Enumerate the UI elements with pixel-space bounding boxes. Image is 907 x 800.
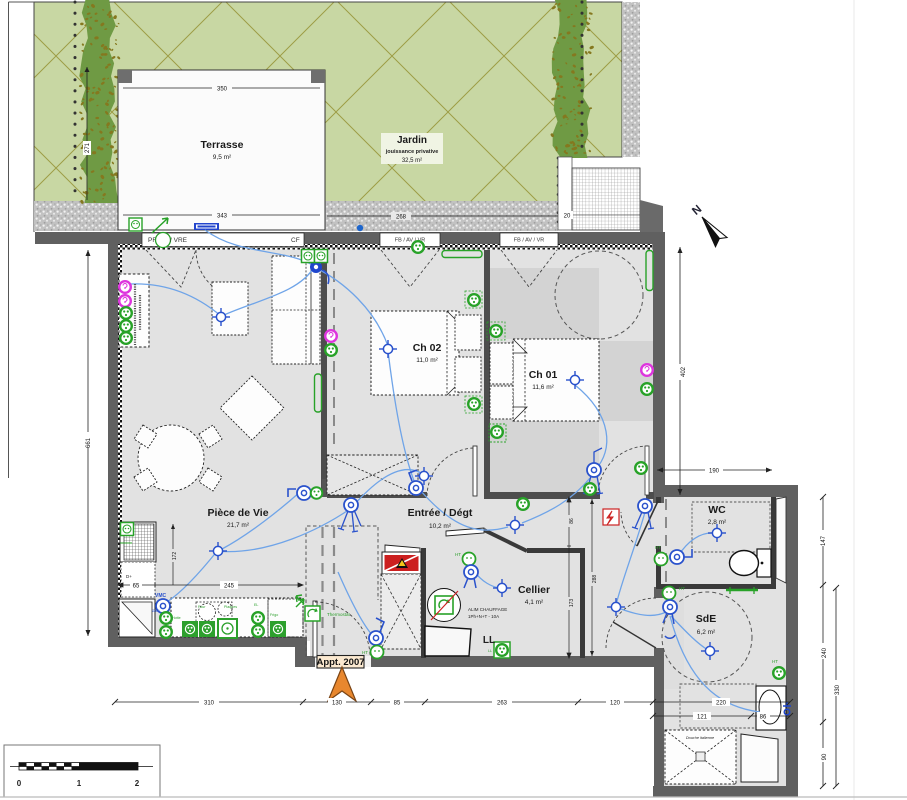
svg-text:HT: HT <box>655 545 661 550</box>
svg-text:86: 86 <box>760 715 767 721</box>
svg-text:220: 220 <box>716 701 727 707</box>
svg-text:Plaques: Plaques <box>224 605 237 609</box>
svg-text:11,6 m²: 11,6 m² <box>532 384 554 391</box>
svg-text:HT: HT <box>362 650 368 655</box>
svg-text:6,2 m²: 6,2 m² <box>697 629 716 636</box>
svg-text:9,5 m²: 9,5 m² <box>213 154 232 161</box>
svg-text:Thermostat: Thermostat <box>327 612 351 617</box>
svg-text:130: 130 <box>332 701 343 707</box>
svg-text:402: 402 <box>681 366 687 377</box>
svg-text:FB / AV / VR: FB / AV / VR <box>514 238 544 244</box>
svg-text:268: 268 <box>396 215 407 221</box>
svg-text:Pièce de Vie: Pièce de Vie <box>207 507 268 519</box>
svg-text:1Ph+N+T - 10A: 1Ph+N+T - 10A <box>468 614 499 619</box>
svg-text:350: 350 <box>217 87 228 93</box>
svg-text:240: 240 <box>822 647 828 658</box>
svg-text:21,7 m²: 21,7 m² <box>227 522 250 529</box>
svg-text:Frigo: Frigo <box>270 613 278 617</box>
svg-text:Appt. 2007: Appt. 2007 <box>316 657 364 668</box>
svg-text:Hotte: Hotte <box>172 616 181 620</box>
svg-text:85: 85 <box>394 701 401 707</box>
svg-text:173: 173 <box>569 599 575 608</box>
svg-text:288: 288 <box>592 575 598 584</box>
svg-text:11,0 m²: 11,0 m² <box>416 357 438 364</box>
svg-text:Four: Four <box>198 605 206 609</box>
svg-text:Douche italienne: Douche italienne <box>686 736 714 740</box>
svg-text:EL: EL <box>254 603 258 607</box>
svg-text:0: 0 <box>17 779 22 788</box>
svg-text:271: 271 <box>85 142 91 153</box>
svg-text:jouissance privative: jouissance privative <box>385 149 439 155</box>
svg-text:LL: LL <box>488 649 492 653</box>
svg-text:120: 120 <box>610 701 621 707</box>
svg-text:VMC: VMC <box>155 593 167 599</box>
svg-text:Entrée / Dégt: Entrée / Dégt <box>408 507 473 519</box>
svg-text:121: 121 <box>697 715 708 721</box>
svg-text:2: 2 <box>135 779 140 788</box>
svg-text:Jardin: Jardin <box>397 135 427 146</box>
svg-text:Ch 01: Ch 01 <box>529 369 558 381</box>
svg-text:32,5 m²: 32,5 m² <box>402 158 422 164</box>
svg-text:245: 245 <box>224 584 235 590</box>
svg-text:Ch 02: Ch 02 <box>413 342 442 354</box>
svg-text:D+: D+ <box>126 574 132 579</box>
svg-text:90: 90 <box>822 753 828 760</box>
svg-text:190: 190 <box>709 469 720 475</box>
svg-text:/ VRE: / VRE <box>170 237 188 244</box>
svg-text:Cellier: Cellier <box>518 584 550 596</box>
svg-text:65: 65 <box>133 584 140 590</box>
svg-text:343: 343 <box>217 214 228 220</box>
svg-text:HT: HT <box>772 659 778 664</box>
svg-text:20: 20 <box>564 214 571 220</box>
svg-text:330: 330 <box>835 684 841 695</box>
svg-text:86: 86 <box>569 518 575 524</box>
svg-text:CF: CF <box>291 237 300 244</box>
svg-text:147: 147 <box>821 535 827 546</box>
svg-text:SdE: SdE <box>696 613 716 625</box>
svg-text:310: 310 <box>204 701 215 707</box>
svg-text:263: 263 <box>497 701 508 707</box>
svg-text:1: 1 <box>77 779 82 788</box>
svg-text:HT: HT <box>455 552 461 557</box>
svg-text:2,8 m²: 2,8 m² <box>708 519 727 526</box>
svg-text:ALIM CHAUFFAGE: ALIM CHAUFFAGE <box>468 607 507 612</box>
svg-text:LL: LL <box>483 635 495 646</box>
svg-text:WC: WC <box>708 504 726 516</box>
svg-text:Ø80: Ø80 <box>152 608 160 613</box>
svg-text:Terrasse: Terrasse <box>200 139 243 151</box>
svg-text:4,1 m²: 4,1 m² <box>525 599 544 606</box>
svg-text:172: 172 <box>172 552 178 561</box>
svg-text:661: 661 <box>86 437 92 448</box>
svg-text:HT: HT <box>679 586 685 591</box>
svg-text:10,2 m²: 10,2 m² <box>429 523 452 530</box>
